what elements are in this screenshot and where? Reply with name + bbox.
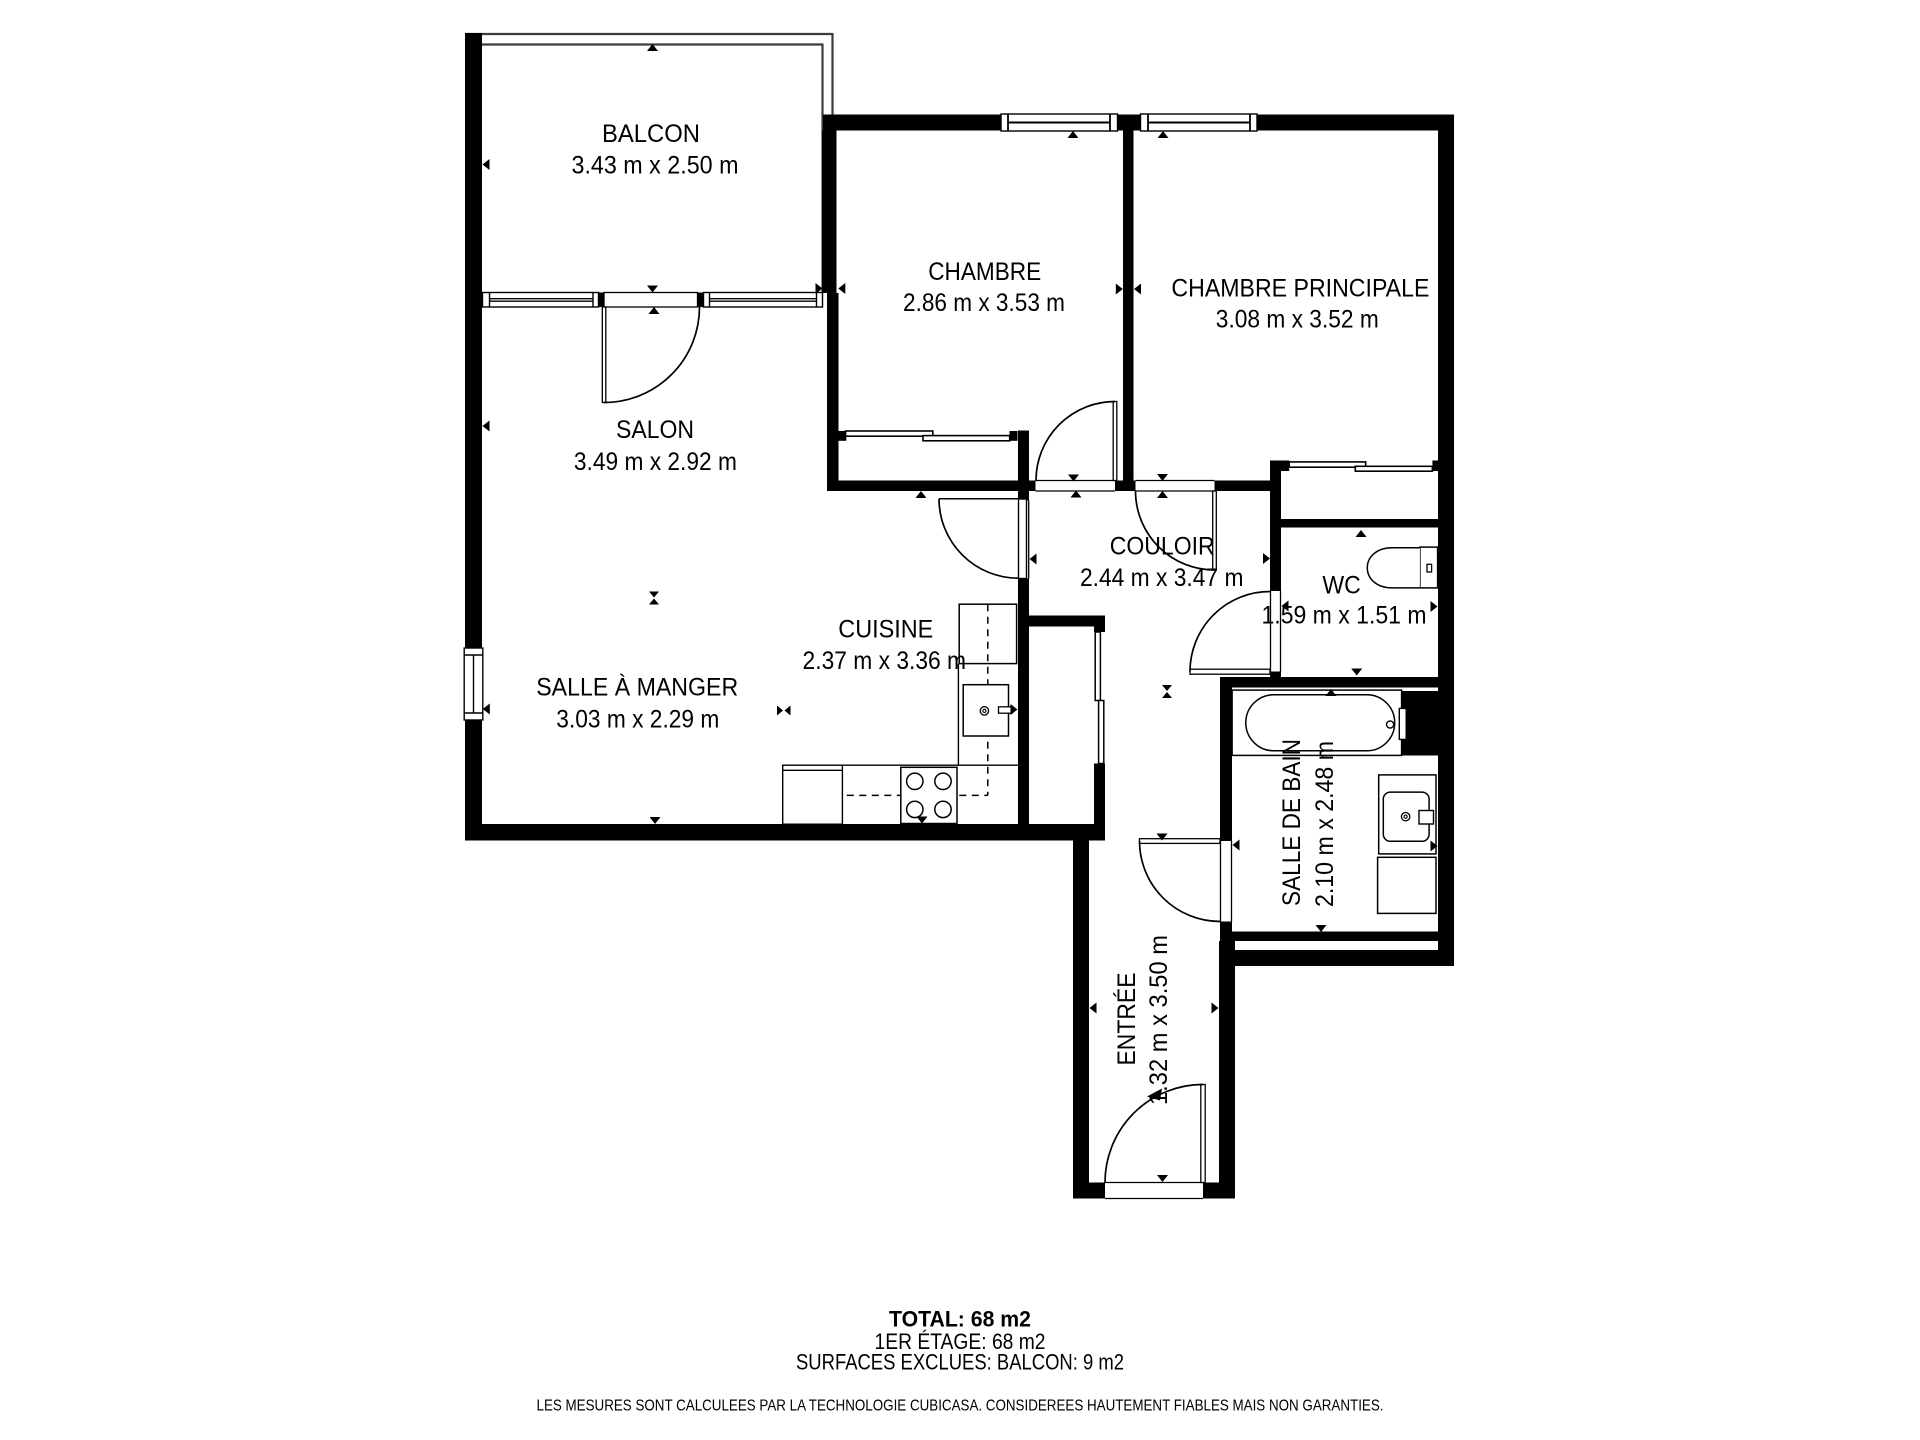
svg-text:2.37 m x 3.36 m: 2.37 m x 3.36 m — [803, 647, 967, 675]
svg-text:WC: WC — [1322, 571, 1361, 599]
svg-text:COULOIR: COULOIR — [1110, 532, 1215, 560]
svg-text:SALLE À MANGER: SALLE À MANGER — [536, 673, 738, 702]
svg-text:ENTRÉE: ENTRÉE — [1112, 973, 1141, 1066]
svg-text:TOTAL: 68 m2: TOTAL: 68 m2 — [889, 1307, 1031, 1332]
svg-text:SALLE DE BAIN: SALLE DE BAIN — [1278, 739, 1306, 906]
svg-text:CUISINE: CUISINE — [838, 616, 933, 644]
svg-text:2.44 m x 3.47 m: 2.44 m x 3.47 m — [1080, 564, 1244, 592]
svg-text:1.59 m x 1.51 m: 1.59 m x 1.51 m — [1262, 602, 1427, 630]
svg-text:3.03 m x 2.29 m: 3.03 m x 2.29 m — [556, 706, 719, 734]
svg-text:1.32 m x 3.50 m: 1.32 m x 3.50 m — [1145, 935, 1173, 1105]
svg-text:2.86 m x 3.53 m: 2.86 m x 3.53 m — [903, 289, 1065, 317]
svg-text:SURFACES EXCLUES: BALCON: 9 m2: SURFACES EXCLUES: BALCON: 9 m2 — [796, 1350, 1124, 1375]
svg-text:CHAMBRE: CHAMBRE — [928, 258, 1041, 286]
svg-text:3.43 m x 2.50 m: 3.43 m x 2.50 m — [572, 151, 739, 179]
svg-text:3.08 m x 3.52 m: 3.08 m x 3.52 m — [1216, 306, 1379, 334]
svg-text:SALON: SALON — [616, 416, 694, 444]
svg-text:BALCON: BALCON — [602, 120, 700, 148]
svg-text:3.49 m x 2.92 m: 3.49 m x 2.92 m — [574, 448, 737, 476]
svg-text:CHAMBRE PRINCIPALE: CHAMBRE PRINCIPALE — [1171, 275, 1429, 303]
svg-text:2.10 m x 2.48 m: 2.10 m x 2.48 m — [1311, 741, 1339, 907]
svg-text:LES MESURES SONT CALCULEES PAR: LES MESURES SONT CALCULEES PAR LA TECHNO… — [537, 1398, 1384, 1415]
